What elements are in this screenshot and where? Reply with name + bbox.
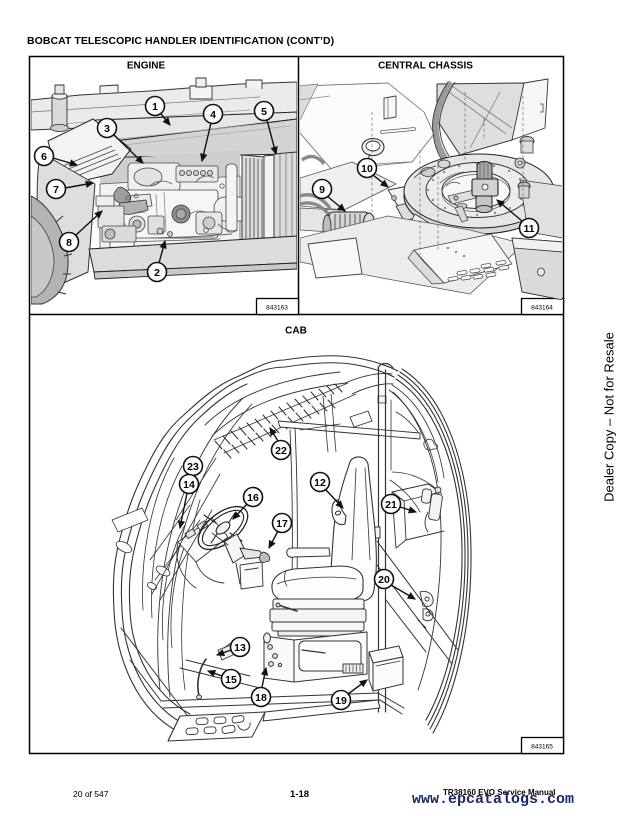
svg-text:14: 14 [183,479,195,491]
svg-text:CAB: CAB [285,326,307,337]
svg-text:3: 3 [104,123,110,135]
svg-text:16: 16 [247,492,259,504]
svg-text:1: 1 [152,101,158,113]
svg-text:843163: 843163 [266,305,288,312]
svg-text:10: 10 [361,163,373,175]
svg-text:11: 11 [523,223,534,235]
svg-text:13: 13 [234,642,246,654]
svg-text:843164: 843164 [531,305,553,312]
svg-text:22: 22 [275,445,287,457]
svg-text:4: 4 [210,109,216,121]
svg-text:20: 20 [378,574,390,586]
svg-text:843165: 843165 [531,744,553,751]
svg-text:7: 7 [53,184,59,196]
svg-text:18: 18 [255,692,267,704]
svg-text:21: 21 [385,499,397,511]
svg-text:17: 17 [276,518,288,530]
svg-text:15: 15 [225,674,237,686]
svg-text:CENTRAL CHASSIS: CENTRAL CHASSIS [378,60,473,71]
svg-text:8: 8 [66,237,72,249]
svg-text:23: 23 [187,461,199,473]
svg-text:6: 6 [41,151,47,163]
svg-text:2: 2 [154,267,160,279]
svg-text:12: 12 [314,477,326,489]
svg-text:9: 9 [319,184,325,196]
svg-text:5: 5 [261,106,267,118]
svg-text:ENGINE: ENGINE [127,60,166,71]
svg-text:19: 19 [335,695,347,707]
